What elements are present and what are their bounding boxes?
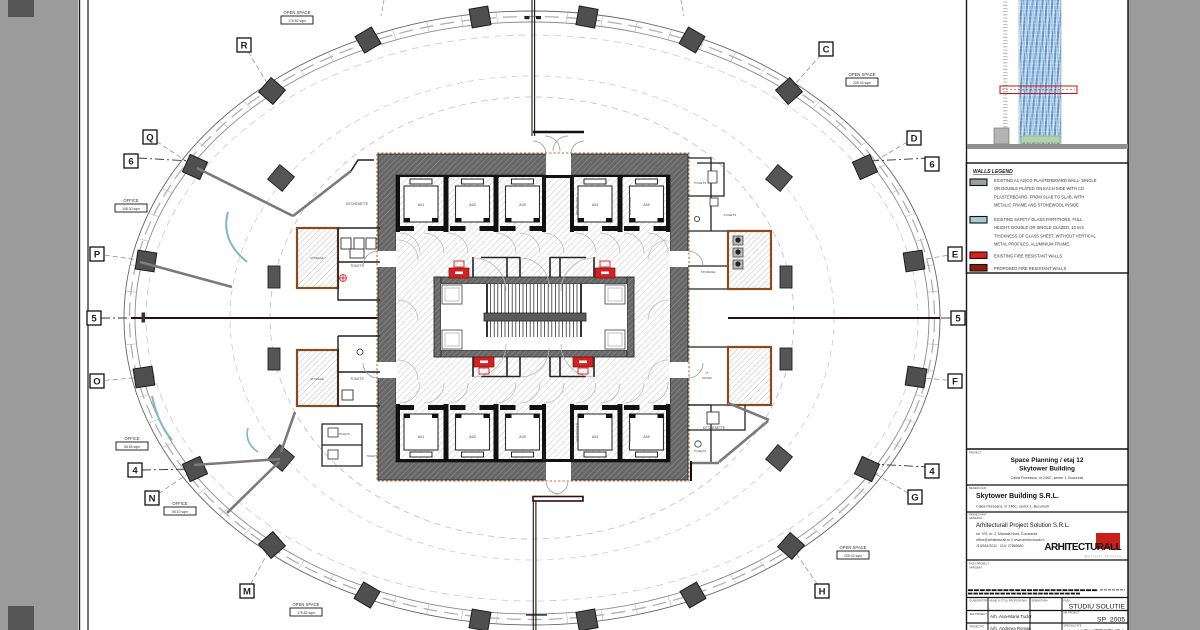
svg-text:FAZA: FAZA <box>1064 599 1071 603</box>
svg-text:STORAGE: STORAGE <box>701 270 716 274</box>
svg-text:205.43 sqm: 205.43 sqm <box>844 554 862 558</box>
svg-text:O: O <box>93 376 100 387</box>
svg-text:ROOM: ROOM <box>702 376 712 380</box>
svg-text:A05: A05 <box>643 435 649 439</box>
svg-text:BENEFICIAR:: BENEFICIAR: <box>969 486 987 490</box>
svg-text:TOILETS: TOILETS <box>350 377 363 381</box>
svg-text:WALLS LEGEND: WALLS LEGEND <box>973 169 1013 175</box>
svg-text:176.82 sqm: 176.82 sqm <box>288 19 306 23</box>
svg-text:N: N <box>149 493 156 504</box>
svg-text:H: H <box>819 586 826 597</box>
svg-text:SEMNATURA: SEMNATURA <box>1032 599 1048 603</box>
svg-text:Calea Floreasca, nr 246C, sect: Calea Floreasca, nr 246C, sector 1, Bucu… <box>1011 476 1084 480</box>
svg-text:P: P <box>94 249 101 260</box>
svg-text:A05: A05 <box>643 203 649 207</box>
svg-text:Space Planning / etaj 12: Space Planning / etaj 12 <box>1011 457 1084 464</box>
svg-text:Q: Q <box>146 132 153 143</box>
svg-text:A04: A04 <box>592 435 598 439</box>
svg-text:STORAGE: STORAGE <box>310 377 324 381</box>
svg-text:FIRE BRIGADE: FIRE BRIGADE <box>628 423 632 442</box>
svg-text:OFFICE: OFFICE <box>124 436 140 441</box>
svg-text:FIRE BRIGADE: FIRE BRIGADE <box>575 423 579 442</box>
svg-text:PROPOSED FIRE RESISTANT WALLS: PROPOSED FIRE RESISTANT WALLS <box>994 266 1067 271</box>
svg-text:A02: A02 <box>469 203 475 207</box>
svg-text:176.82 sqm: 176.82 sqm <box>297 611 315 615</box>
svg-text:TOILETS: TOILETS <box>338 432 350 436</box>
svg-text:OFFICE: OFFICE <box>123 198 139 203</box>
svg-text:205.43 sqm: 205.43 sqm <box>853 81 871 85</box>
svg-text:Arh. Ana-Maria Tudor: Arh. Ana-Maria Tudor <box>990 614 1032 619</box>
svg-text:ELABORATOR: ELABORATOR <box>970 599 988 603</box>
svg-text:KITCHENETTE: KITCHENETTE <box>703 426 725 430</box>
svg-text:PLASTERBOARD- FROM SLAB TO SLA: PLASTERBOARD- FROM SLAB TO SLAB, WITH <box>994 194 1084 199</box>
svg-text:EXISTING SAFETY GLASS PARTITIO: EXISTING SAFETY GLASS PARTITIONS, FULL <box>994 217 1083 222</box>
svg-text:A02: A02 <box>469 435 475 439</box>
svg-text:M: M <box>243 586 251 597</box>
svg-text:METAL PROFILES. ALUMINIUM FRAM: METAL PROFILES. ALUMINIUM FRAME. <box>994 242 1070 247</box>
svg-text:SP_2005: SP_2005 <box>1097 617 1125 624</box>
svg-text:TOILETS: TOILETS <box>366 454 378 458</box>
svg-text:PROIECT:: PROIECT: <box>969 451 982 455</box>
svg-text:TOILETS: TOILETS <box>350 264 363 268</box>
svg-text:METALIC FRAME AND STONEWOOL IN: METALIC FRAME AND STONEWOOL INSIDE <box>994 203 1079 208</box>
svg-text:OFFICE: OFFICE <box>172 501 188 506</box>
svg-text:Calea Floreasca, nr 246C, sect: Calea Floreasca, nr 246C, sector 1, Bucu… <box>976 505 1049 509</box>
svg-text:56.55 sqm: 56.55 sqm <box>124 445 140 449</box>
svg-text:J13/534/2011 CUI: 27865630: J13/534/2011 CUI: 27865630 <box>976 544 1023 548</box>
svg-text:G: G <box>911 492 918 503</box>
svg-text:A01: A01 <box>418 435 424 439</box>
svg-text:108.30 sqm: 108.30 sqm <box>122 207 140 211</box>
svg-text:NR PROIECT: NR PROIECT <box>1064 611 1080 615</box>
svg-text:SEF PROIECT: SEF PROIECT <box>970 612 988 616</box>
svg-text:6: 6 <box>128 156 133 167</box>
svg-text:4: 4 <box>132 465 138 476</box>
svg-text:office@arhitecturall.ro // www: office@arhitecturall.ro // www.arhitectu… <box>976 538 1045 542</box>
svg-text:STUDIU SOLUTIE: STUDIU SOLUTIE <box>1069 604 1126 611</box>
svg-text:OPEN SPACE: OPEN SPACE <box>293 602 320 607</box>
svg-text:HEIGHT, DOUBLE OR SINGLE GLAZE: HEIGHT, DOUBLE OR SINGLE GLAZED, 10 mm <box>994 225 1084 230</box>
svg-text:A03: A03 <box>519 435 525 439</box>
svg-text:EXISTING FIRE RESISTANT WALLS: EXISTING FIRE RESISTANT WALLS <box>994 254 1062 259</box>
svg-text:SPECIALITATE: SPECIALITATE <box>1064 624 1082 628</box>
svg-text:STORAGE: STORAGE <box>310 256 324 260</box>
svg-text:EXISTING A1 A2(CO PLASTERBOARD: EXISTING A1 A2(CO PLASTERBOARD WALL- SIN… <box>994 178 1097 183</box>
svg-text:APROBAT: APROBAT <box>969 566 982 570</box>
svg-text:C: C <box>823 44 830 55</box>
svg-text:5: 5 <box>955 313 961 324</box>
svg-text:Arhitecturall Project Solution: Arhitecturall Project Solution S.R.L. <box>976 523 1070 529</box>
svg-text:55.10 sqm: 55.10 sqm <box>172 510 188 514</box>
svg-text:OR DOUBLE PLATED ON EACH SIDE: OR DOUBLE PLATED ON EACH SIDE WITH CD <box>994 186 1084 191</box>
svg-text:PROIECTAT: PROIECTAT <box>970 625 985 629</box>
svg-text:OPEN SPACE: OPEN SPACE <box>284 10 311 15</box>
svg-text:FIRE BRIGADE: FIRE BRIGADE <box>575 197 579 216</box>
svg-text:D: D <box>911 133 918 144</box>
svg-text:@ p r o j e c t s o l u t i: @ p r o j e c t s o l u t i o n <box>1084 554 1121 558</box>
svg-text:F: F <box>952 376 958 387</box>
svg-text:A03: A03 <box>519 203 525 207</box>
svg-text:str. IVS, nr. 2, Mamaia Nord,: str. IVS, nr. 2, Mamaia Nord, Constanta <box>976 532 1037 536</box>
svg-text:A04: A04 <box>592 203 598 207</box>
svg-text:E: E <box>952 249 958 260</box>
svg-text:ARHITECTURALL: ARHITECTURALL <box>1044 542 1121 553</box>
svg-text:IT: IT <box>706 371 709 375</box>
svg-text:6: 6 <box>929 159 934 170</box>
svg-text:TOILETS: TOILETS <box>724 213 736 217</box>
svg-text:OPEN SPACE: OPEN SPACE <box>849 72 876 77</box>
svg-text:TOILETS: TOILETS <box>694 181 706 185</box>
svg-text:A01: A01 <box>418 203 424 207</box>
svg-text:KITCHENETTE: KITCHENETTE <box>346 202 368 206</box>
svg-text:NUME SI TITLU PROFESIONAL: NUME SI TITLU PROFESIONAL <box>990 599 1028 603</box>
svg-text:Skytower Building: Skytower Building <box>1019 466 1075 473</box>
svg-text:Skytower Building S.R.L.: Skytower Building S.R.L. <box>976 493 1059 500</box>
svg-text:4: 4 <box>929 466 935 477</box>
svg-text:R: R <box>241 40 248 51</box>
svg-text:Arh. Andreea Roman: Arh. Andreea Roman <box>990 626 1032 630</box>
svg-text:OPEN SPACE: OPEN SPACE <box>840 545 867 550</box>
svg-text:5: 5 <box>91 313 97 324</box>
svg-text:TOILETS: TOILETS <box>694 449 706 453</box>
svg-text:GENERAL:: GENERAL: <box>969 516 983 520</box>
svg-text:THICKNESS OF GLASS SHEET, WITH: THICKNESS OF GLASS SHEET, WITHOUT VERTIC… <box>994 233 1096 238</box>
svg-text:FIRE BRIGADE: FIRE BRIGADE <box>628 197 632 216</box>
